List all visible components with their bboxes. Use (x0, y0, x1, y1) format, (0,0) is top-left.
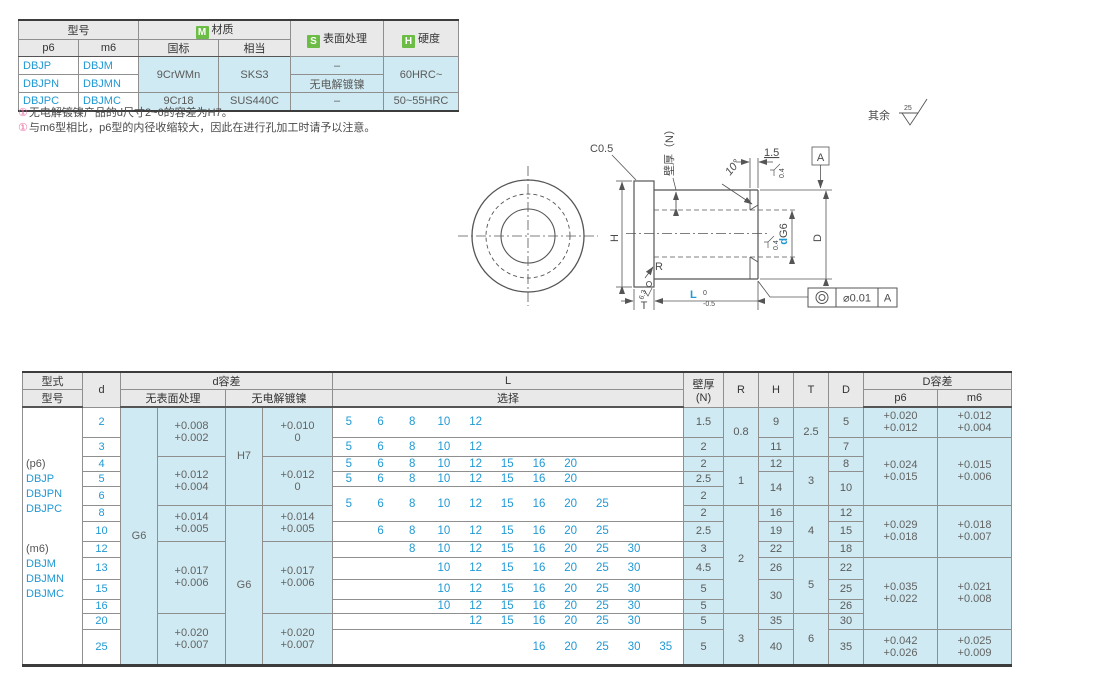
chamfer-label: C0.5 (590, 143, 613, 155)
N-value: 2.5 (684, 521, 724, 541)
L-value: 5 (333, 473, 365, 485)
model-name: DBJPN (26, 487, 62, 502)
L-options: 1620253035 (333, 629, 684, 665)
H-value: 19 (759, 521, 794, 541)
L-value: 12 (460, 458, 492, 470)
surface-finish-label: 0.4 (779, 168, 786, 178)
header-select: 选择 (333, 390, 684, 408)
T-value: 4 (794, 505, 829, 557)
L-value: 8 (396, 416, 428, 428)
D-value: 12 (829, 505, 864, 521)
d-value: 20 (83, 613, 121, 629)
model-name: DBJP (26, 472, 62, 487)
N-value: 3 (684, 541, 724, 557)
spec-header-hardness: H硬度 (384, 20, 459, 57)
height-label: H (609, 234, 621, 242)
header-model: 型号 (23, 390, 83, 408)
N-value: 4.5 (684, 557, 724, 579)
L-options: 10121516202530 (333, 599, 684, 613)
general-roughness: 其余 25 (868, 99, 927, 125)
L-value: 8 (396, 458, 428, 470)
tol-no-surface: +0.014+0.005 (158, 505, 226, 541)
tol-m6: +0.025+0.009 (938, 629, 1012, 665)
surface-finish-radius: 6.3 (638, 288, 652, 301)
H-value: 11 (759, 437, 794, 456)
L-options: 5681012 (333, 407, 684, 437)
T-value: 5 (794, 557, 829, 613)
L-value: 10 (428, 458, 460, 470)
L-value: 20 (555, 641, 587, 653)
H-value: 40 (759, 629, 794, 665)
spec-header-p6: p6 (19, 40, 79, 57)
H-value: 12 (759, 456, 794, 471)
spec-header-equiv: 相当 (219, 40, 291, 57)
spec-header-m6: m6 (79, 40, 139, 57)
header-m6: m6 (938, 390, 1012, 408)
R-value: 0.8 (724, 407, 759, 456)
header-p6: p6 (864, 390, 938, 408)
N-value: 5 (684, 599, 724, 613)
tol-electroless: +0.0120 (263, 456, 333, 505)
L-value: 25 (587, 498, 619, 510)
H-value: 35 (759, 613, 794, 629)
L-value: 6 (365, 525, 397, 537)
tol-no-surface: +0.017+0.006 (158, 541, 226, 613)
tol-m6: +0.015+0.006 (938, 437, 1012, 505)
bore-dia-dim: dG6 (778, 211, 792, 256)
L-value: 10 (428, 583, 460, 595)
L-value: 15 (491, 562, 523, 574)
outer-dia-label: D (812, 234, 824, 242)
dimension-table: 型式 d d容差 L 壁厚(N) R H T D D容差 型号 无表面处理 无电… (22, 371, 1012, 667)
L-value: 16 (523, 498, 555, 510)
L-value: 15 (491, 473, 523, 485)
L-value: 8 (396, 543, 428, 555)
N-value: 2 (684, 486, 724, 505)
N-value: 1.5 (684, 407, 724, 437)
L-value: 25 (587, 615, 619, 627)
T-value: 2.5 (794, 407, 829, 456)
length-label: L (690, 289, 697, 301)
wall-thickness-dim: 壁厚（N） (662, 124, 676, 208)
N-value: 5 (684, 613, 724, 629)
header-wall: 壁厚(N) (684, 372, 724, 407)
H-value: 26 (759, 557, 794, 579)
tol-m6: +0.018+0.007 (938, 505, 1012, 557)
header-L: L (333, 372, 684, 390)
model-p6: DBJP (19, 57, 79, 75)
L-value: 6 (365, 498, 397, 510)
tol-p6: +0.042+0.026 (864, 629, 938, 665)
others-label: 其余 (868, 108, 890, 122)
wall-label: 壁厚（N） (662, 124, 676, 176)
L-value: 20 (555, 458, 587, 470)
L-value: 16 (523, 615, 555, 627)
L-value: 30 (618, 562, 650, 574)
L-value: 20 (555, 473, 587, 485)
L-value: 12 (460, 498, 492, 510)
outer-dia-dim: D (760, 190, 832, 279)
surface-finish-top: 0.4 (770, 164, 786, 178)
L-value: 15 (491, 525, 523, 537)
surface-badge-icon: S (307, 35, 320, 48)
L-value: 10 (428, 525, 460, 537)
L-options: 810121516202530 (333, 541, 684, 557)
L-value: 25 (587, 562, 619, 574)
D-value: 18 (829, 541, 864, 557)
L-value: 16 (523, 600, 555, 612)
front-view (458, 166, 598, 306)
L-value: 6 (365, 441, 397, 453)
L-value: 12 (460, 441, 492, 453)
L-value: 30 (618, 641, 650, 653)
header-d-tol: d容差 (121, 372, 333, 390)
model-m6: DBJM (79, 57, 139, 75)
L-value: 30 (618, 543, 650, 555)
L-value: 16 (523, 473, 555, 485)
note-text: 与m6型相比，p6型的内径收缩较大，因此在进行孔加工时请予以注意。 (29, 122, 376, 134)
header-H: H (759, 372, 794, 407)
tol-m6: +0.021+0.008 (938, 557, 1012, 629)
L-value: 8 (396, 473, 428, 485)
row-d2: (p6) DBJP DBJPN DBJPC (m6) DBJM DBJMN DB… (23, 407, 1012, 437)
D-value: 25 (829, 579, 864, 599)
tol-m6: +0.012+0.004 (938, 407, 1012, 437)
note-text: 无电解镀镍产品的d尺寸2~6的容差为H7。 (29, 107, 233, 119)
d-value: 16 (83, 599, 121, 613)
L-value: 15 (491, 615, 523, 627)
flange-thickness-dim: T (621, 289, 654, 312)
spec-row: DBJP DBJM 9CrWMn SKS3 – 60HRC~ (19, 57, 459, 75)
row-d20: 20 +0.020+0.007 +0.020+0.007 12151620253… (23, 613, 1012, 629)
tol-p6: +0.024+0.015 (864, 437, 938, 505)
H-value: 30 (759, 579, 794, 613)
row-d4: 4 +0.012+0.004 +0.0120 5681012151620 2 1… (23, 456, 1012, 471)
L-value: 15 (491, 458, 523, 470)
height-dim: H (609, 181, 632, 287)
land-dim: 1.5 A (736, 147, 829, 188)
L-value: 8 (396, 441, 428, 453)
model-name: DBJMN (26, 572, 64, 587)
note-line: ①无电解镀镍产品的d尺寸2~6的容差为H7。 (18, 106, 375, 121)
L-value: 10 (428, 416, 460, 428)
grade-electroless: G6 (226, 505, 263, 665)
tol-no-surface: +0.012+0.004 (158, 456, 226, 505)
surface-value: – (291, 57, 384, 75)
tol-electroless: +0.014+0.005 (263, 505, 333, 541)
tol-p6: +0.020+0.012 (864, 407, 938, 437)
L-options: 10121516202530 (333, 579, 684, 599)
L-value: 12 (460, 416, 492, 428)
L-value: 8 (396, 498, 428, 510)
N-value: 5 (684, 629, 724, 665)
L-value: 16 (523, 562, 555, 574)
d-value: 5 (83, 471, 121, 486)
d-value: 15 (83, 579, 121, 599)
d-value: 3 (83, 437, 121, 456)
L-value: 10 (428, 562, 460, 574)
concentricity-frame: ⌀0.01 A (758, 281, 897, 307)
L-options: 5681012151620 (333, 456, 684, 471)
tol-no-surface: +0.020+0.007 (158, 613, 226, 665)
header-d: d (83, 372, 121, 407)
L-value: 25 (587, 641, 619, 653)
model-p6: DBJPN (19, 75, 79, 93)
concentricity-value: ⌀0.01 (843, 293, 871, 305)
model-group-p6: (p6) DBJP DBJPN DBJPC (26, 457, 62, 517)
note-marker-icon: ① (18, 122, 28, 134)
radius-label: R (655, 261, 663, 273)
catalog-page: { "top_table": { "headers": { "model": "… (0, 0, 1100, 678)
spec-header-gb: 国标 (139, 40, 219, 57)
D-value: 22 (829, 557, 864, 579)
L-value: 12 (460, 543, 492, 555)
R-value: 3 (724, 613, 759, 665)
L-value: 5 (333, 498, 365, 510)
L-value: 12 (460, 562, 492, 574)
T-value: 3 (794, 456, 829, 505)
length-dim: L 0 -0.5 (655, 281, 758, 310)
material-equiv: SKS3 (219, 57, 291, 93)
R-value: 2 (724, 505, 759, 613)
L-value: 20 (555, 498, 587, 510)
L-value: 10 (428, 441, 460, 453)
d-value: 6 (83, 486, 121, 505)
hardness-badge-icon: H (402, 35, 415, 48)
d-value: 13 (83, 557, 121, 579)
tol-electroless: +0.020+0.007 (263, 613, 333, 665)
D-value: 26 (829, 599, 864, 613)
L-value: 10 (428, 543, 460, 555)
header-D: D (829, 372, 864, 407)
header-T: T (794, 372, 829, 407)
L-value: 10 (428, 473, 460, 485)
T-value: 6 (794, 613, 829, 665)
spec-header-surface: S表面处理 (291, 20, 384, 57)
datum-a-label: A (817, 152, 825, 164)
L-options: 68101215162025 (333, 521, 684, 541)
grade-no-surface: G6 (121, 407, 158, 665)
surface-finish-label: 6.3 (638, 289, 648, 301)
L-value: 20 (555, 583, 587, 595)
L-value: 5 (333, 441, 365, 453)
model-column: (p6) DBJP DBJPN DBJPC (m6) DBJM DBJMN DB… (23, 407, 83, 665)
L-value: 12 (460, 473, 492, 485)
concentricity-datum: A (884, 293, 892, 305)
L-value: 35 (650, 641, 682, 653)
L-value: 12 (460, 600, 492, 612)
L-value: 16 (523, 543, 555, 555)
L-value: 6 (365, 473, 397, 485)
L-value: 30 (618, 615, 650, 627)
length-tol-hi: 0 (703, 290, 707, 297)
note-line: ①与m6型相比，p6型的内径收缩较大，因此在进行孔加工时请予以注意。 (18, 121, 375, 136)
flange-thickness-label: T (641, 300, 648, 312)
N-value: 2 (684, 437, 724, 456)
L-value: 12 (460, 615, 492, 627)
H-value: 22 (759, 541, 794, 557)
L-value: 16 (523, 583, 555, 595)
d-value: 10 (83, 521, 121, 541)
L-value: 16 (523, 458, 555, 470)
surface-finish-label: 0.4 (773, 240, 780, 250)
D-value: 35 (829, 629, 864, 665)
model-name: DBJM (26, 557, 64, 572)
chamfer-dim: C0.5 (590, 143, 636, 180)
H-value: 16 (759, 505, 794, 521)
L-value: 20 (555, 615, 587, 627)
L-value: 25 (587, 525, 619, 537)
L-value: 20 (555, 600, 587, 612)
D-value: 5 (829, 407, 864, 437)
L-value: 5 (333, 416, 365, 428)
side-view (626, 181, 796, 287)
model-group-m6: (m6) DBJM DBJMN DBJMC (26, 542, 64, 602)
spec-table: 型号 M材质 S表面处理 H硬度 p6 m6 国标 相当 DBJP DBJM 9… (18, 19, 459, 112)
surface-value: 无电解镀镍 (291, 75, 384, 93)
header-D-tol: D容差 (864, 372, 1012, 390)
L-value: 15 (491, 498, 523, 510)
tol-no-surface: +0.008+0.002 (158, 407, 226, 456)
L-value: 5 (333, 458, 365, 470)
L-value: 12 (460, 525, 492, 537)
type-p6: (p6) (26, 457, 62, 472)
L-value: 12 (460, 583, 492, 595)
notes: ①无电解镀镍产品的d尺寸2~6的容差为H7。 ①与m6型相比，p6型的内径收缩较… (18, 106, 375, 136)
L-value: 16 (523, 641, 555, 653)
type-m6: (m6) (26, 542, 64, 557)
taper-angle-label: 10° (723, 157, 743, 178)
N-value: 5 (684, 579, 724, 599)
L-value: 20 (555, 562, 587, 574)
model-name: DBJMC (26, 587, 64, 602)
technical-drawing: 壁厚（N） C0.5 H 10° 1.5 A D dG6 (440, 88, 1050, 338)
note-marker-icon: ① (18, 107, 28, 119)
L-options: 5681012151620 (333, 471, 684, 486)
header-no-surface: 无表面处理 (121, 390, 226, 408)
tol-electroless: +0.0100 (263, 407, 333, 456)
L-value: 8 (396, 525, 428, 537)
model-m6: DBJMN (79, 75, 139, 93)
L-options: 568101215162025 (333, 486, 684, 521)
spec-header-material: M材质 (139, 20, 291, 40)
L-value: 25 (587, 583, 619, 595)
D-value: 8 (829, 456, 864, 471)
L-value: 15 (491, 600, 523, 612)
D-value: 30 (829, 613, 864, 629)
N-value: 2 (684, 505, 724, 521)
L-value: 30 (618, 583, 650, 595)
header-R: R (724, 372, 759, 407)
d-value: 4 (83, 456, 121, 471)
material-badge-icon: M (196, 26, 209, 39)
N-value: 2 (684, 456, 724, 471)
H-value: 9 (759, 407, 794, 437)
d-value: 12 (83, 541, 121, 557)
R-value: 1 (724, 456, 759, 505)
taper-angle-dim: 10° (722, 157, 752, 204)
concentricity-icon (816, 292, 828, 304)
D-value: 10 (829, 471, 864, 505)
L-value: 15 (491, 543, 523, 555)
L-value: 6 (365, 458, 397, 470)
L-value: 30 (618, 600, 650, 612)
grade-electroless: H7 (226, 407, 263, 505)
L-value: 16 (523, 525, 555, 537)
L-options: 121516202530 (333, 613, 684, 629)
length-tol-lo: -0.5 (703, 301, 715, 308)
land-label: 1.5 (764, 147, 779, 159)
others-roughness-value: 25 (904, 105, 912, 112)
material-gb: 9CrWMn (139, 57, 219, 93)
D-value: 7 (829, 437, 864, 456)
roughness-symbol-icon (899, 99, 927, 125)
spec-header-model: 型号 (19, 20, 139, 40)
N-value: 2.5 (684, 471, 724, 486)
L-value: 10 (428, 498, 460, 510)
L-value: 15 (491, 583, 523, 595)
D-value: 15 (829, 521, 864, 541)
H-value: 14 (759, 471, 794, 505)
model-name: DBJPC (26, 502, 62, 517)
tol-p6: +0.035+0.022 (864, 557, 938, 629)
tol-p6: +0.029+0.018 (864, 505, 938, 557)
tol-electroless: +0.017+0.006 (263, 541, 333, 613)
L-value: 20 (555, 525, 587, 537)
L-options: 5681012 (333, 437, 684, 456)
row-d12: 12 +0.017+0.006 +0.017+0.006 81012151620… (23, 541, 1012, 557)
L-value: 20 (555, 543, 587, 555)
L-value: 10 (428, 600, 460, 612)
L-value: 25 (587, 600, 619, 612)
header-type: 型式 (23, 372, 83, 390)
d-value: 25 (83, 629, 121, 665)
d-value: 8 (83, 505, 121, 521)
d-value: 2 (83, 407, 121, 437)
header-electroless: 无电解镀镍 (226, 390, 333, 408)
L-options: 10121516202530 (333, 557, 684, 579)
L-value: 25 (587, 543, 619, 555)
L-value: 6 (365, 416, 397, 428)
